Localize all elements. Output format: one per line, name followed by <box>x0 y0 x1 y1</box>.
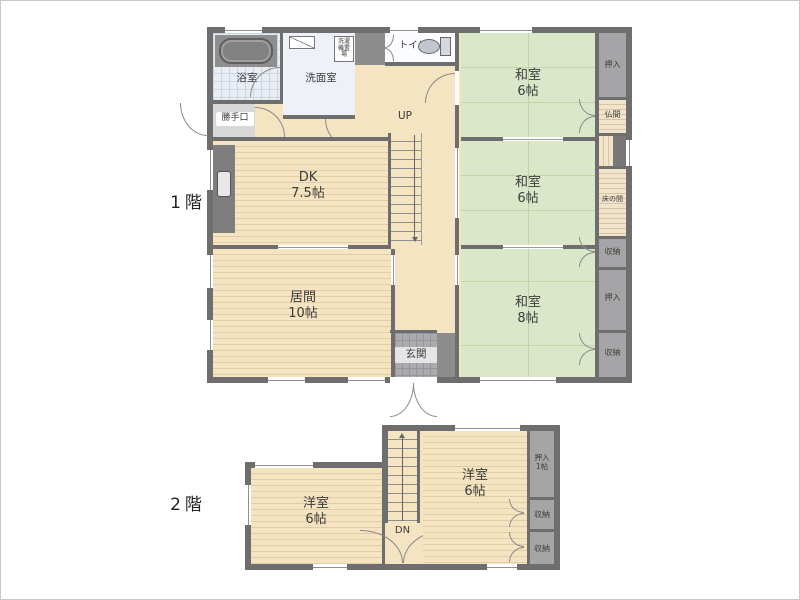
vanity-icon <box>289 36 315 49</box>
dk-name: DK <box>299 170 318 186</box>
washitsu1-door-arc <box>425 73 455 103</box>
sliding-door-hall-washitsu3 <box>455 255 459 285</box>
window <box>390 27 418 33</box>
washitsu3-label: 和室 8帖 <box>483 288 573 334</box>
shuno-mid-label: 収納 <box>599 246 626 258</box>
shuno2-2f-label: 収納 <box>530 543 554 555</box>
floor2-label: 2階 <box>160 495 216 517</box>
dk-label: DK 7.5帖 <box>253 163 363 209</box>
stairs-up-arrowhead-icon <box>399 433 405 438</box>
window <box>313 564 347 570</box>
butsuma-label: 仏間 <box>599 109 626 121</box>
shuno-bottom-label: 収納 <box>599 347 626 359</box>
entrance-label: 玄関 <box>395 347 437 363</box>
west-right-size: 6帖 <box>464 484 485 500</box>
stairs-arrow-line <box>414 135 415 237</box>
washitsu1-label: 和室 6帖 <box>483 61 573 107</box>
west-right-name: 洋室 <box>462 468 488 484</box>
window <box>268 377 305 383</box>
washitsu1-size: 6帖 <box>517 84 538 100</box>
wall <box>385 62 455 66</box>
living-label: 居間 10帖 <box>243 283 363 329</box>
floorplan-canvas: 1階 2階 浴室 洗濯機置場 洗面室 トイレ 勝手口 <box>0 0 800 600</box>
wall <box>455 33 459 71</box>
floor2-plan: 洋室 6帖 DN 洋室 6帖 押入 1帖 収納 収納 <box>245 425 560 570</box>
backdoor-arc <box>180 103 208 136</box>
washer-storage-box: 洗濯機置場 <box>334 36 354 62</box>
window <box>626 140 632 166</box>
stairs-1f <box>388 133 422 245</box>
wall <box>455 218 459 255</box>
tokonoma-label: 床の間 <box>599 193 626 205</box>
kitchen-sink-icon <box>217 171 231 197</box>
washitsu1-name: 和室 <box>515 68 541 84</box>
west-left-name: 洋室 <box>303 496 329 512</box>
window <box>207 255 213 288</box>
floor1-plan: 浴室 洗濯機置場 洗面室 トイレ 勝手口 DK 7.5帖 <box>207 27 632 383</box>
window <box>480 377 556 383</box>
west-left-size: 6帖 <box>305 512 326 528</box>
wall <box>355 33 385 65</box>
stairs-down-arrowhead-icon <box>412 237 418 242</box>
living-name: 居間 <box>290 290 316 306</box>
wall <box>455 285 459 377</box>
toilet-icon <box>418 39 440 54</box>
stairs-2f <box>385 431 420 523</box>
oshiire-mid-label: 押入 <box>599 292 626 304</box>
window <box>225 27 262 33</box>
oshiire-top-label: 押入 <box>599 59 626 71</box>
corridor-door-arc <box>255 107 285 137</box>
stairs-arrow-line <box>402 438 403 521</box>
washroom-label: 洗面室 <box>293 71 349 87</box>
window <box>245 485 251 525</box>
alcove-side-board <box>595 133 613 166</box>
stairs-dn-label: DN <box>385 525 420 538</box>
dk-size: 7.5帖 <box>291 186 325 202</box>
washitsu2-label: 和室 6帖 <box>483 168 573 214</box>
washitsu2-name: 和室 <box>515 175 541 191</box>
toilet-tank-icon <box>440 37 451 56</box>
oshiire-2f-label: 押入 1帖 <box>530 449 554 475</box>
living-size: 10帖 <box>288 306 318 322</box>
sliding-door-hall-washitsu2 <box>455 148 459 218</box>
door-gap <box>455 71 459 105</box>
entrance-door-arc <box>390 383 414 417</box>
backdoor-label: 勝手口 <box>216 112 254 126</box>
wall <box>455 105 459 148</box>
window <box>348 377 385 383</box>
closet-small <box>613 133 626 166</box>
entrance-door-arc <box>413 383 437 417</box>
oshiire-2f-name: 押入 <box>535 453 550 462</box>
window <box>207 320 213 350</box>
west-left-label: 洋室 6帖 <box>266 489 366 535</box>
window <box>455 425 520 431</box>
stairs-up-label: UP <box>383 109 427 124</box>
bathtub-icon <box>219 38 273 64</box>
washitsu3-name: 和室 <box>515 295 541 311</box>
oshiire-2f-size: 1帖 <box>536 462 548 471</box>
washitsu3-size: 8帖 <box>517 311 538 327</box>
shoe-cabinet <box>437 333 455 377</box>
sliding-door-living-hall <box>391 255 395 285</box>
shuno1-2f-label: 収納 <box>530 509 554 521</box>
window <box>480 27 532 33</box>
window <box>207 150 213 190</box>
washitsu2-size: 6帖 <box>517 191 538 207</box>
window <box>487 564 517 570</box>
